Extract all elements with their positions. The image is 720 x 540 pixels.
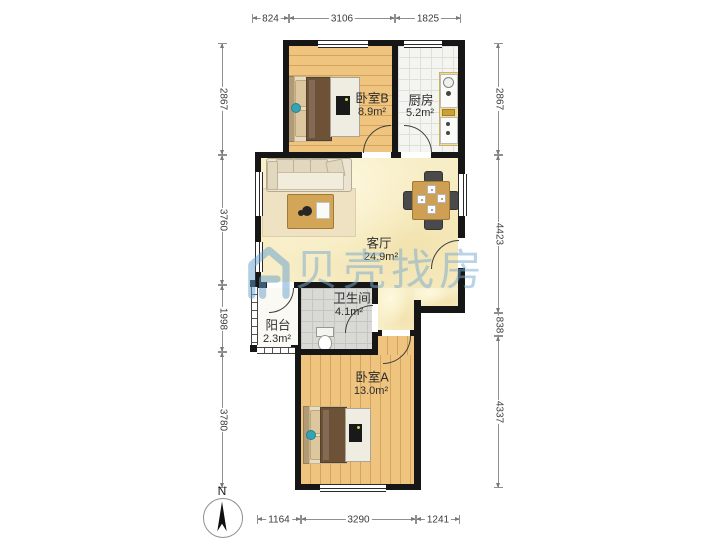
dim-top-1825: 1825 <box>395 12 461 25</box>
balcony-area: 2.3m² <box>263 333 291 345</box>
window-balcony-bottom <box>257 347 295 354</box>
stove-burner <box>446 122 450 126</box>
bedroom-b-accent <box>291 103 301 113</box>
dim-top-824: 824 <box>252 12 289 25</box>
window-living-right <box>458 174 467 216</box>
plate <box>437 194 446 203</box>
window-kitchen <box>404 40 442 48</box>
kitchen-sink <box>443 77 454 88</box>
stove-burner <box>446 131 450 135</box>
bathroom-label: 卫生间 <box>333 288 371 307</box>
kitchen-item <box>442 109 455 116</box>
hallway-floor <box>378 288 414 332</box>
dim-bottom-3290: 3290 <box>301 513 416 526</box>
door-gap-entry <box>458 238 465 268</box>
living-room-label: 客厅 <box>366 233 391 252</box>
balcony-corner-post <box>250 345 257 352</box>
plate <box>427 205 436 214</box>
bedroom-a-label: 卧室A <box>355 367 388 386</box>
dim-left-3780: 3780 <box>216 352 229 488</box>
plate <box>427 185 436 194</box>
window-bedroom-b <box>318 40 368 48</box>
dim-right-838: 838 <box>492 313 505 336</box>
bedroom-a-area: 13.0m² <box>354 385 388 397</box>
floor-plan-canvas: 卧室B 8.9m² 厨房 5.2m² 客厅 24.9m² 卫生间 4.1m² 阳… <box>0 0 720 540</box>
wall-bedroom-a-right <box>414 300 421 490</box>
window-bedroom-a <box>320 484 386 492</box>
kitchen-area: 5.2m² <box>406 107 434 119</box>
wall-bathroom-bottom <box>295 349 378 355</box>
dim-right-2867: 2867 <box>492 43 505 155</box>
dim-left-1998: 1998 <box>216 285 229 352</box>
bedroom-a-duvet <box>320 407 347 463</box>
coffee-table-tray <box>316 202 330 219</box>
compass-north-label: N <box>218 484 227 498</box>
dim-bottom-1164: 1164 <box>257 513 301 526</box>
dim-left-3760: 3760 <box>216 155 229 285</box>
bathroom-area: 4.1m² <box>335 306 363 318</box>
wall-bedroom-b-kitchen <box>392 40 398 158</box>
kitchen-faucet <box>446 91 451 96</box>
bedroom-a-accent <box>306 430 316 440</box>
balcony-label: 阳台 <box>265 315 290 334</box>
wall-entry-step <box>414 306 465 313</box>
window-balcony-left <box>251 287 258 345</box>
living-room-area: 24.9m² <box>364 251 398 263</box>
dim-bottom-1241: 1241 <box>416 513 460 526</box>
bedroom-b-tv <box>336 96 350 115</box>
dim-right-4423: 4423 <box>492 155 505 313</box>
bedroom-a-tv <box>349 424 362 442</box>
dim-top-3106: 3106 <box>289 12 395 25</box>
sofa-armrest <box>267 161 278 190</box>
bedroom-b-label: 卧室B <box>355 88 388 107</box>
window-living-left-upper <box>255 172 263 216</box>
bedroom-b-area: 8.9m² <box>358 106 386 118</box>
plate <box>417 195 426 204</box>
wall-bedroom-b-left <box>283 40 289 158</box>
balcony-corner-post <box>250 280 257 287</box>
wall-balcony-bathroom <box>298 288 301 349</box>
kitchen-label: 厨房 <box>408 90 433 109</box>
bedroom-b-duvet <box>306 77 332 141</box>
dim-left-2867: 2867 <box>216 43 229 155</box>
sofa-seat <box>276 172 344 190</box>
window-living-left-lower <box>255 242 263 272</box>
coffee-table-cup <box>298 210 304 216</box>
wall-bedroom-a-left <box>295 349 301 490</box>
dim-right-4337: 4337 <box>492 336 505 488</box>
